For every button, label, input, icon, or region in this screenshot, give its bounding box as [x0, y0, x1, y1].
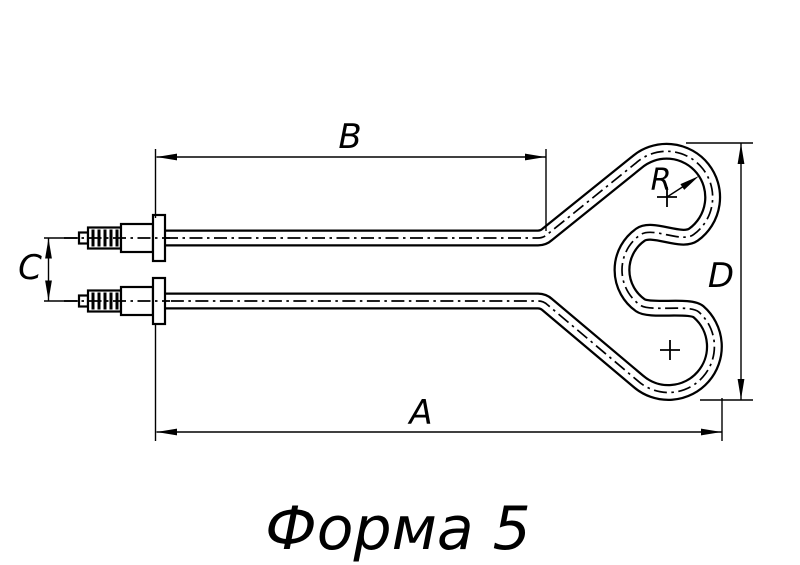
- heating-element-tube: [165, 151, 714, 392]
- dimension-label-b: B: [338, 117, 361, 157]
- drawing-canvas: B A C D R Форма 5: [0, 0, 800, 565]
- arrowhead-down: [738, 379, 745, 400]
- dimension-b: B: [156, 117, 547, 231]
- thread-ridge: [110, 293, 113, 310]
- arrowhead-down: [45, 281, 52, 301]
- thread-ridge: [110, 230, 113, 247]
- tube-outline: [165, 151, 714, 392]
- arrowhead-up: [45, 239, 52, 259]
- radius-arrowhead: [680, 176, 699, 190]
- dimension-label-d: D: [708, 256, 734, 296]
- tube-bore: [165, 151, 714, 392]
- arrowhead-right: [525, 154, 546, 161]
- dimension-label-c: C: [18, 248, 42, 288]
- technical-drawing-heating-element: B A C D R Форма 5: [0, 0, 800, 565]
- arrowhead-left: [157, 429, 178, 436]
- tube-centerline: [165, 151, 714, 392]
- arrowhead-up: [738, 144, 745, 165]
- form-title: Форма 5: [265, 494, 531, 564]
- radius-label: R: [651, 163, 672, 198]
- dimension-label-a: A: [407, 393, 432, 433]
- center-cross-bottom: [660, 340, 680, 360]
- arrowhead-left: [157, 154, 178, 161]
- dimension-c: C: [18, 238, 80, 301]
- arrowhead-right: [701, 429, 722, 436]
- cross-mark: [660, 340, 680, 360]
